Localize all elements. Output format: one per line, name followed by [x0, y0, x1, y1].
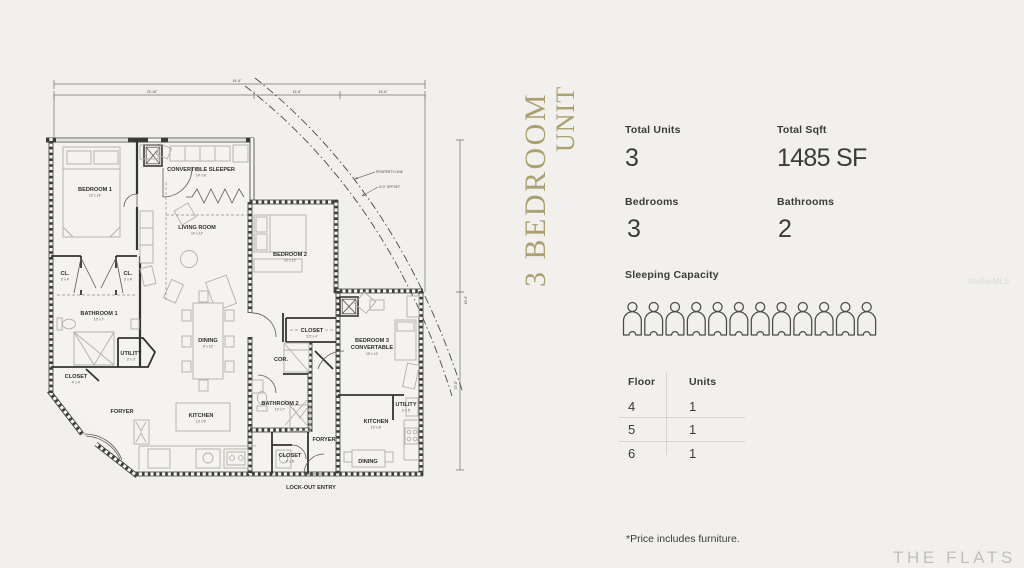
svg-text:44'-6": 44'-6" [233, 79, 242, 83]
svg-text:10' x 8': 10' x 8' [371, 426, 382, 430]
svg-text:12' x 14': 12' x 14' [89, 194, 101, 198]
svg-text:22'-10": 22'-10" [147, 90, 158, 94]
svg-text:15'-6": 15'-6" [293, 90, 302, 94]
svg-text:14' x 8': 14' x 8' [196, 174, 207, 178]
svg-text:LIVING ROOM: LIVING ROOM [178, 225, 216, 231]
svg-text:13' x 8': 13' x 8' [196, 420, 207, 424]
svg-text:3' x 5': 3' x 5' [402, 409, 411, 413]
svg-text:PROPERTY LINE: PROPERTY LINE [376, 170, 404, 174]
svg-text:COR.: COR. [274, 357, 288, 363]
svg-text:FORYER: FORYER [312, 437, 335, 443]
svg-text:DINING: DINING [198, 338, 218, 344]
svg-text:DINING: DINING [358, 459, 378, 465]
svg-text:LOCK-OUT ENTRY: LOCK-OUT ENTRY [286, 485, 336, 491]
svg-text:BEDROOM 2: BEDROOM 2 [273, 252, 307, 258]
svg-text:8' x 13': 8' x 13' [203, 345, 214, 349]
svg-text:3' x 3': 3' x 3' [127, 358, 136, 362]
svg-text:FORYER: FORYER [110, 409, 133, 415]
svg-text:CLOSET: CLOSET [279, 453, 302, 459]
svg-text:UTILITY: UTILITY [395, 402, 416, 408]
svg-text:BATHROOM 2: BATHROOM 2 [261, 401, 298, 407]
svg-text:KITCHEN: KITCHEN [364, 419, 389, 425]
svg-text:10' x 12': 10' x 12' [284, 259, 296, 263]
svg-text:19' x 12': 19' x 12' [366, 352, 378, 356]
svg-text:4' x 4': 4' x 4' [72, 381, 81, 385]
svg-text:3' x 4': 3' x 4' [124, 278, 133, 282]
svg-text:14' x 12': 14' x 12' [191, 232, 203, 236]
svg-text:UTILITY: UTILITY [120, 351, 141, 357]
svg-text:37'-8": 37'-8" [454, 380, 458, 389]
svg-text:15'-6": 15'-6" [379, 90, 388, 94]
svg-text:10' x 7': 10' x 7' [275, 408, 286, 412]
svg-text:BATHROOM 1: BATHROOM 1 [80, 311, 117, 317]
svg-text:4'-0" OFFSET: 4'-0" OFFSET [379, 185, 400, 189]
svg-text:2' x 4': 2' x 4' [61, 278, 70, 282]
svg-text:CL.: CL. [60, 271, 69, 277]
svg-text:CONVERTABLE: CONVERTABLE [351, 345, 393, 351]
svg-text:CLOSET: CLOSET [65, 374, 88, 380]
svg-text:5.5' x 4': 5.5' x 4' [306, 335, 318, 339]
svg-text:CONVERTIBLE SLEEPER: CONVERTIBLE SLEEPER [167, 167, 235, 173]
svg-text:4' x 8': 4' x 8' [286, 460, 295, 464]
svg-text:CLOSET: CLOSET [301, 328, 324, 334]
svg-text:BEDROOM 1: BEDROOM 1 [78, 187, 112, 193]
svg-text:BEDROOM 3: BEDROOM 3 [355, 338, 389, 344]
svg-text:45'-4": 45'-4" [464, 295, 468, 304]
svg-text:10' x 7': 10' x 7' [94, 318, 105, 322]
svg-text:CL.: CL. [123, 271, 132, 277]
svg-text:KITCHEN: KITCHEN [189, 413, 214, 419]
